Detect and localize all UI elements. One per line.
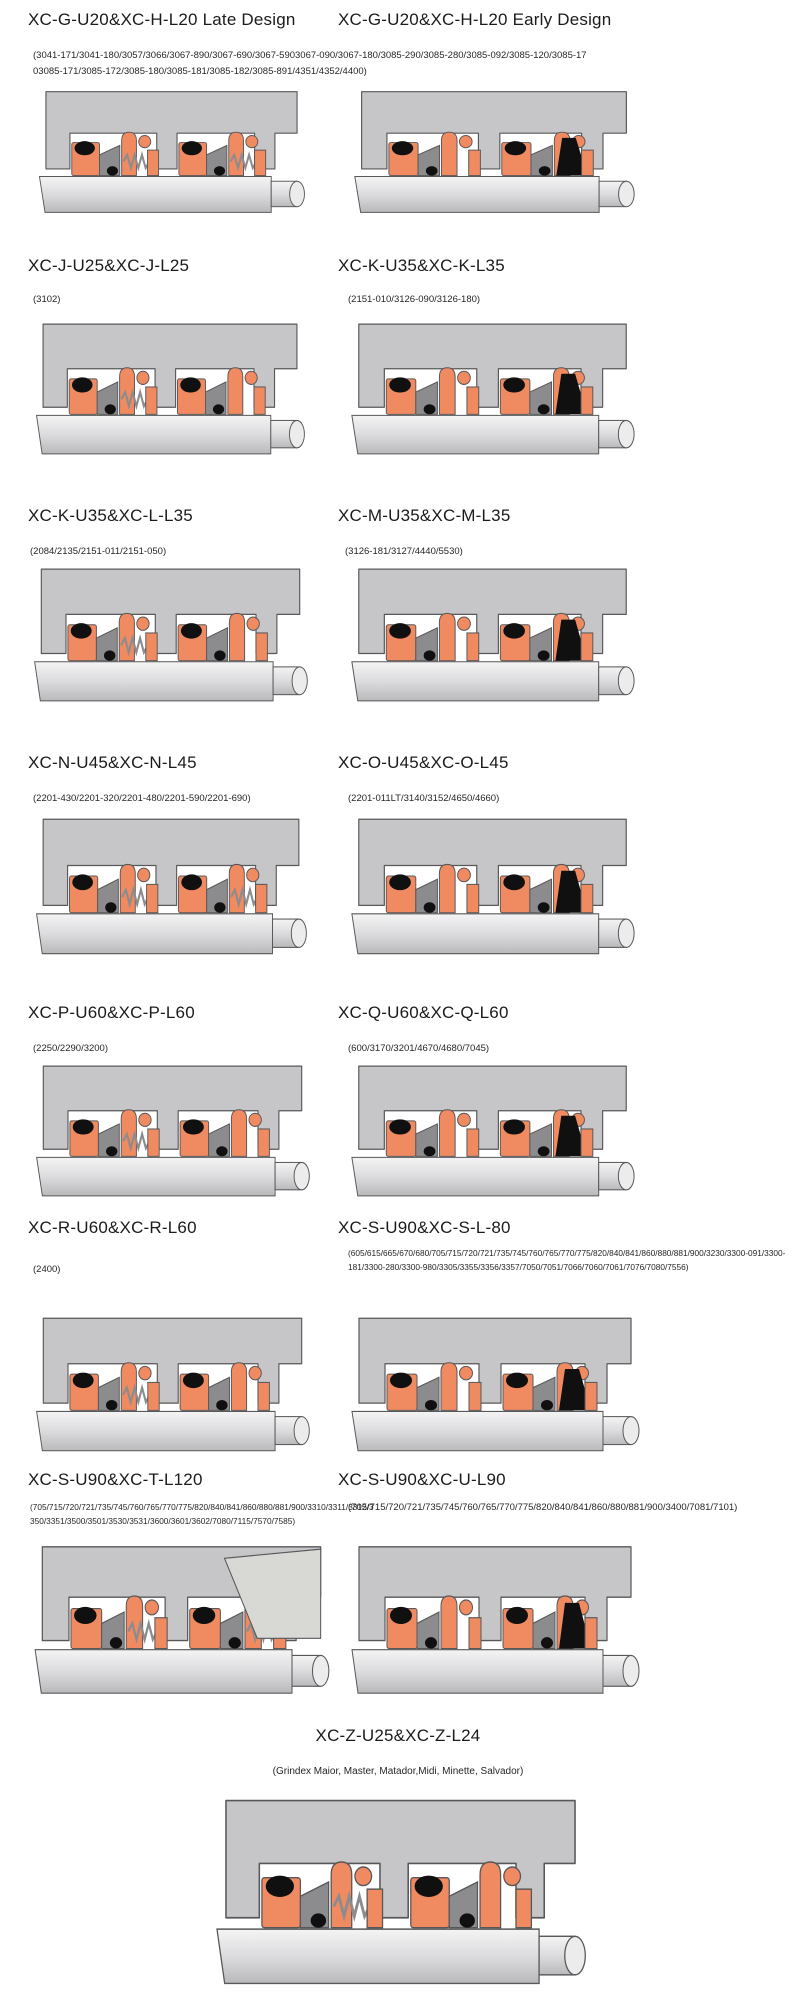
o-ring xyxy=(426,166,438,175)
seal-diagram xyxy=(33,86,310,218)
seal-cross-section xyxy=(30,1060,315,1202)
o-ring xyxy=(424,650,436,660)
o-ring xyxy=(74,1607,97,1624)
catalog-page: XC-G-U20&XC-H-L20 Late Design XC-G-U20&X… xyxy=(0,0,796,2004)
section-title: XC-J-U25&XC-J-L25 xyxy=(28,256,189,276)
seal-assembly xyxy=(386,864,478,912)
seal-cross-section xyxy=(208,1792,593,1992)
o-ring xyxy=(503,874,525,890)
seal-assembly xyxy=(386,613,478,660)
model-list: (2084/2135/2151-011/2151-050) xyxy=(30,544,320,560)
o-ring xyxy=(425,1400,437,1410)
seal-cross-section xyxy=(345,1060,640,1202)
seal-assembly xyxy=(502,132,593,175)
o-ring xyxy=(505,141,526,155)
seal-assembly xyxy=(500,1110,592,1157)
o-ring xyxy=(110,1637,122,1648)
seal-diagram xyxy=(30,318,310,460)
section-title: XC-N-U45&XC-N-L45 xyxy=(28,753,197,773)
seal-assembly xyxy=(69,864,157,912)
o-ring xyxy=(311,1913,326,1927)
o-ring xyxy=(424,404,436,414)
seal-assembly xyxy=(180,1110,269,1157)
shaft xyxy=(352,415,634,454)
o-ring xyxy=(73,1119,94,1134)
o-ring xyxy=(180,377,201,392)
o-ring xyxy=(390,1607,412,1624)
seal-assembly xyxy=(500,613,592,660)
o-ring xyxy=(538,650,550,660)
seal-cross-section xyxy=(30,813,312,960)
o-ring xyxy=(213,404,224,414)
seal-cross-section xyxy=(348,86,640,218)
section-title: XC-S-U90&XC-U-L90 xyxy=(338,1470,506,1490)
seal-cross-section xyxy=(345,1540,645,1700)
seal-assembly xyxy=(386,1110,478,1157)
seal-assembly xyxy=(386,368,478,415)
o-ring xyxy=(389,377,411,392)
seal-assembly xyxy=(500,864,592,912)
seal-diagram xyxy=(30,813,312,960)
o-ring xyxy=(214,650,225,660)
o-ring xyxy=(503,377,525,392)
shaft xyxy=(217,1929,585,1983)
o-ring xyxy=(104,650,115,660)
shaft xyxy=(352,1411,639,1450)
o-ring xyxy=(389,1119,411,1134)
model-list: (2400) xyxy=(33,1262,233,1278)
o-ring xyxy=(216,1400,227,1410)
o-ring xyxy=(503,1119,525,1134)
section-title: XC-K-U35&XC-L-L35 xyxy=(28,506,193,526)
o-ring xyxy=(193,1607,216,1624)
o-ring xyxy=(216,1146,227,1156)
model-list: (2250/2290/3200) xyxy=(33,1041,313,1057)
seal-cross-section xyxy=(33,86,310,218)
shaft xyxy=(352,1157,634,1196)
seal-assembly xyxy=(70,1363,159,1411)
o-ring xyxy=(424,1146,436,1156)
shaft xyxy=(352,662,634,701)
section-title: XC-S-U90&XC-T-L120 xyxy=(28,1470,203,1490)
seal-diagram xyxy=(345,563,640,707)
seal-cross-section xyxy=(345,563,640,707)
o-ring xyxy=(424,902,436,913)
seal-cross-section xyxy=(28,563,313,707)
o-ring xyxy=(72,874,93,890)
section-title: XC-Z-U25&XC-Z-L24 xyxy=(0,1726,796,1746)
seal-cross-section xyxy=(345,813,640,960)
seal-diagram xyxy=(345,1060,640,1202)
o-ring xyxy=(183,1373,204,1389)
seal-cross-section xyxy=(30,318,310,460)
model-list: (Grindex Maior, Master, Matador,Midi, Mi… xyxy=(0,1764,796,1781)
shaft xyxy=(37,1157,310,1196)
section-title: XC-P-U60&XC-P-L60 xyxy=(28,1003,195,1023)
o-ring xyxy=(415,1876,443,1897)
o-ring xyxy=(389,874,411,890)
seal-diagram xyxy=(28,1540,335,1700)
seal-assembly xyxy=(389,132,480,175)
o-ring xyxy=(181,623,202,638)
section-title: XC-K-U35&XC-K-L35 xyxy=(338,256,505,276)
shaft xyxy=(352,1650,639,1693)
seal-assembly xyxy=(387,1363,481,1411)
seal-assembly xyxy=(503,1596,597,1649)
seal-assembly xyxy=(71,1596,167,1649)
o-ring xyxy=(214,902,225,913)
section-title: XC-S-U90&XC-S-L-80 xyxy=(338,1218,511,1238)
o-ring xyxy=(229,1637,241,1648)
o-ring xyxy=(541,1400,553,1410)
seal-assembly xyxy=(177,368,265,415)
seal-diagram xyxy=(345,813,640,960)
seal-diagram xyxy=(348,86,640,218)
seal-cross-section xyxy=(30,1312,315,1457)
seal-assembly xyxy=(68,613,157,660)
model-list: (3041-171/3041-180/3057/3066/3067-890/30… xyxy=(33,48,589,79)
seal-assembly xyxy=(69,368,157,415)
shaft xyxy=(35,1650,329,1693)
o-ring xyxy=(506,1373,528,1389)
model-list: (2201-430/2201-320/2201-480/2201-590/220… xyxy=(33,791,333,807)
o-ring xyxy=(503,623,525,638)
seal-assembly xyxy=(262,1862,383,1928)
section-title: XC-M-U35&XC-M-L35 xyxy=(338,506,511,526)
model-list: (2201-011LT/3140/3152/4650/4660) xyxy=(348,791,638,807)
o-ring xyxy=(538,1146,550,1156)
seal-diagram xyxy=(28,563,313,707)
seal-assembly xyxy=(178,613,267,660)
o-ring xyxy=(73,1373,94,1389)
o-ring xyxy=(389,623,411,638)
shaft xyxy=(352,914,634,954)
o-ring xyxy=(106,1400,117,1410)
o-ring xyxy=(541,1637,553,1648)
seal-assembly xyxy=(180,1363,269,1411)
seal-cross-section xyxy=(28,1540,335,1700)
section-title: XC-G-U20&XC-H-L20 Late Design xyxy=(28,10,296,30)
o-ring xyxy=(538,404,550,414)
o-ring xyxy=(71,623,92,638)
seal-cross-section xyxy=(345,1312,645,1457)
model-list: (3102) xyxy=(33,292,313,308)
shaft xyxy=(35,662,308,701)
o-ring xyxy=(538,902,550,913)
model-list: (705/715/720/721/735/745/760/765/770/775… xyxy=(30,1500,376,1528)
section-title: XC-R-U60&XC-R-L60 xyxy=(28,1218,197,1238)
o-ring xyxy=(182,141,202,155)
seal-assembly xyxy=(72,132,159,175)
model-list: (3126-181/3127/4440/5530) xyxy=(345,544,635,560)
o-ring xyxy=(506,1607,528,1624)
seal-assembly xyxy=(179,864,267,912)
section-title: XC-G-U20&XC-H-L20 Early Design xyxy=(338,10,611,30)
o-ring xyxy=(181,874,202,890)
model-list: (600/3170/3201/4670/4680/7045) xyxy=(348,1041,638,1057)
o-ring xyxy=(392,141,413,155)
o-ring xyxy=(390,1373,412,1389)
shaft xyxy=(39,177,304,213)
seal-assembly xyxy=(500,368,592,415)
model-list: (705/715/720/721/735/745/760/765/770/775… xyxy=(348,1500,778,1516)
o-ring xyxy=(75,141,95,155)
seal-diagram xyxy=(30,1312,315,1457)
o-ring xyxy=(539,166,551,175)
seal-assembly xyxy=(179,132,266,175)
o-ring xyxy=(214,166,225,175)
o-ring xyxy=(105,902,116,913)
seal-assembly xyxy=(503,1363,597,1411)
seal-assembly xyxy=(70,1110,159,1157)
o-ring xyxy=(107,166,118,175)
seal-diagram xyxy=(345,318,640,460)
seal-assembly xyxy=(387,1596,481,1649)
o-ring xyxy=(460,1913,475,1927)
shaft xyxy=(37,1411,310,1450)
o-ring xyxy=(266,1876,294,1897)
section-title: XC-Q-U60&XC-Q-L60 xyxy=(338,1003,509,1023)
o-ring xyxy=(425,1637,437,1648)
section-title: XC-O-U45&XC-O-L45 xyxy=(338,753,509,773)
seal-diagram xyxy=(208,1792,593,1992)
o-ring xyxy=(183,1119,204,1134)
seal-cross-section xyxy=(345,318,640,460)
o-ring xyxy=(72,377,93,392)
seal-diagram xyxy=(345,1540,645,1700)
seal-assembly xyxy=(411,1862,532,1928)
o-ring xyxy=(106,1146,117,1156)
shaft xyxy=(37,914,307,954)
seal-diagram xyxy=(30,1060,315,1202)
model-list: (605/615/665/670/680/705/715/720/721/735… xyxy=(348,1246,788,1274)
model-list: (2151-010/3126-090/3126-180) xyxy=(348,292,638,308)
shaft xyxy=(37,415,305,454)
shaft xyxy=(355,177,634,213)
seal-diagram xyxy=(345,1312,645,1457)
o-ring xyxy=(105,404,116,414)
